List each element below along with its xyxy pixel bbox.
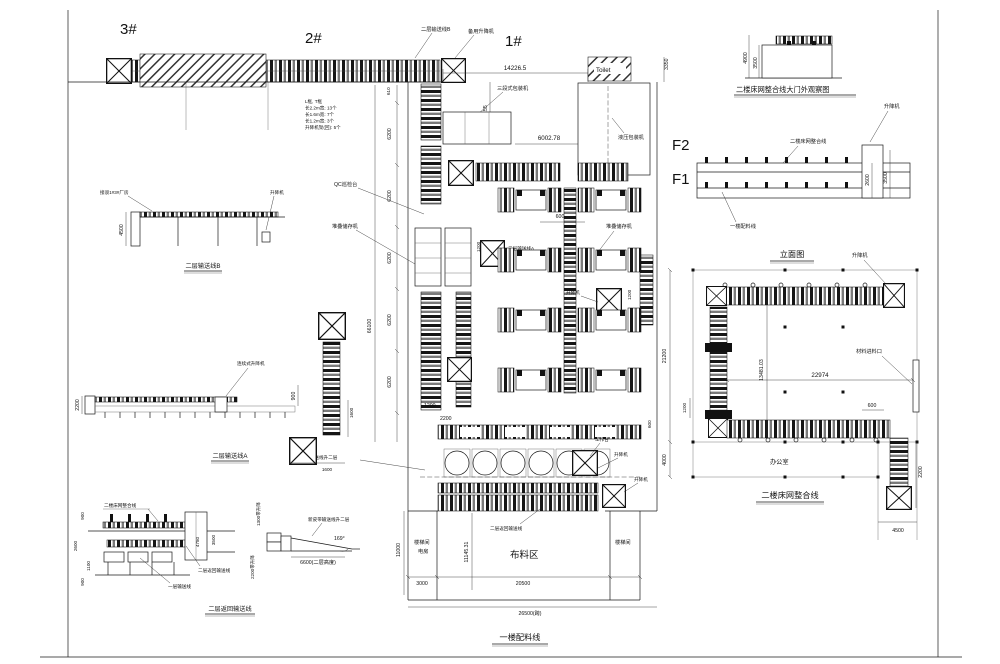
lift-mid-label: 升降机 (566, 289, 580, 296)
dim-6200: 6200 (387, 128, 393, 140)
lift-glyph (262, 232, 270, 242)
note-line: 长1.2m宽: 3个 (305, 118, 335, 125)
elevation-line1-label: 一楼配料线 (730, 222, 756, 230)
spare-lift-box (442, 59, 466, 83)
dim-13481: 13481.03 (759, 359, 765, 381)
frame-count-note: L框, T框 长2.2m宽: 13个 长1.6m宽: 7个 长1.2m宽: 3个… (305, 98, 341, 131)
dim-22974: 22974 (811, 372, 829, 379)
u-bottom-conveyor (727, 420, 890, 438)
dim-1200: 1200 (476, 241, 481, 252)
dim-2200: 2200 (75, 399, 81, 411)
stacker-left-label: 堆叠储存机 (332, 222, 359, 230)
svg-text:二层返回输送线: 二层返回输送线 (208, 605, 251, 613)
connect-label: 接驳1#3#厂房 (100, 189, 129, 196)
svg-text:二层输送线B: 二层输送线B (185, 262, 220, 270)
cad-drawing-sheet: 3# 2# 1# 二层输送线B 备用升降机 610 L框, T框 长2.2m宽:… (0, 0, 1000, 664)
belt-ramp-label: 新皮带输送线升二层 (308, 516, 350, 523)
gate-view: 4900 3500 二楼床网整合线大门外观察图 升降机 (734, 35, 900, 142)
dim-3000: 3000 (416, 581, 428, 587)
right-strip (640, 255, 653, 325)
stacker-tower (445, 228, 471, 286)
spare-lift-label: 备用升降机 (468, 27, 495, 35)
dim-900: 900 (80, 578, 85, 586)
three-stage-packer-label: 三段式包装机 (497, 84, 529, 92)
dim-600: 600 (556, 214, 565, 220)
support-block (85, 396, 95, 414)
lift-box (107, 59, 132, 84)
lift-box (319, 313, 346, 340)
material-inlet-label: 材料进料口 (856, 347, 882, 355)
dim-2200: 2200 (918, 466, 924, 478)
dim-2200: 2200 (440, 416, 452, 422)
dim-6200: 6200 (387, 190, 393, 202)
lift-box (884, 284, 905, 308)
lift-box (709, 419, 728, 438)
stair-right-label: 楼梯间 (615, 538, 631, 546)
lift-box (887, 487, 912, 510)
angle-169: 169° (334, 536, 345, 542)
office-label: 办公室 (770, 458, 789, 466)
elevation-title: 立面图 (770, 249, 814, 263)
dim-2600: 2600 (73, 540, 78, 551)
dim-1600: 1600 (322, 467, 333, 472)
gate-body (762, 45, 832, 78)
return-line-label: 二层返回输送线 (490, 525, 523, 532)
return-conveyor (438, 495, 598, 511)
elevation-lift-tower (862, 145, 883, 198)
upper-belt (103, 522, 185, 528)
dim-21200: 21200 (662, 349, 668, 364)
descend-strip-1 (421, 84, 441, 140)
conveyor-b-label: 二层输送线B (421, 25, 451, 33)
svg-text:二楼床网整合线大门外观察图: 二楼床网整合线大门外观察图 (736, 85, 829, 94)
note-line: L框, T框 (305, 98, 323, 105)
cross-conveyor-a (476, 163, 560, 181)
qc-station-label: QC巡检台 (334, 180, 357, 188)
fabric-zone-label: 布料区 (510, 549, 539, 561)
jog-strip (323, 342, 340, 435)
dim-20500: 20500 (516, 581, 531, 587)
lift-box (707, 287, 727, 306)
main-plan-title: 一楼配料线 (492, 632, 548, 646)
workbench-label: 工作台 (595, 436, 609, 443)
dim-4780: 4780 (195, 536, 200, 547)
dim-3350: 3350 (664, 58, 670, 70)
note-line: 升降机架(回): 5个 (305, 124, 341, 131)
dim-3500: 3500 (211, 534, 216, 545)
floor-mark-f1: F1 (672, 171, 690, 188)
mark-2: 2# (305, 30, 322, 47)
belt (140, 212, 278, 217)
dim-4900: 4900 (743, 52, 749, 64)
dim-3500: 3500 (753, 57, 759, 69)
dim-1300-lift: 1300带升降 (255, 502, 262, 526)
gate-lift-label: 升降机 (884, 102, 900, 110)
elevation-view: 二楼床网整合线 一楼配料线 2600 3500 立面图 升降机 (697, 137, 910, 284)
elevation-lift-label: 升降机 (852, 251, 868, 259)
cont-lift-label: 连续式升降机 (237, 360, 265, 367)
material-inlet-door (913, 360, 919, 412)
lift-box-mid (597, 289, 622, 314)
lift-b-label: 升降机 (634, 476, 648, 483)
return-label: 二层返回输送线 (198, 567, 231, 574)
dim-6200: 6200 (387, 252, 393, 264)
dim-2200-lift: 2200带升降 (249, 555, 256, 579)
dim-6600: 6600(二层高度) (300, 558, 336, 566)
three-stage-packer (443, 112, 511, 144)
detail-conveyor-a: 连续式升降机 2200 900 二层输送线A (75, 360, 298, 463)
dim-6200: 6200 (387, 314, 393, 326)
belt-row-lower (438, 483, 598, 493)
lift-box (448, 358, 472, 382)
stacker-right-label: 堆叠储存机 (606, 222, 633, 230)
lift-a-label: 升降机 (614, 451, 628, 458)
lift-glyph (215, 397, 227, 412)
left-conveyor-strip (421, 292, 441, 410)
dim-600: 600 (647, 420, 652, 428)
dim-1200: 1200 (627, 289, 632, 300)
detail-a-title: 二层输送线A (211, 452, 249, 463)
dim-4000: 4000 (662, 454, 668, 466)
dim-610: 610 (386, 87, 391, 95)
mark-1: 1# (505, 33, 522, 50)
cad-drawing-canvas: 3# 2# 1# 二层输送线B 备用升降机 610 L框, T框 长2.2m宽:… (0, 0, 1000, 664)
note-line: 长1.6m宽: 7个 (305, 111, 335, 118)
lift-box (603, 485, 626, 508)
mid-belt (107, 540, 187, 547)
detail-return-line: 二楼床网整合线 900 2600 1100 900 4780 3500 二层返回… (73, 502, 255, 616)
svg-text:立面图: 立面图 (780, 249, 805, 259)
dim-11000: 11000 (396, 543, 402, 557)
dim-900: 900 (291, 392, 297, 401)
lift-box (449, 161, 474, 186)
svg-text:二层输送线A: 二层输送线A (212, 452, 248, 460)
elevation-line2-label: 二楼床网整合线 (790, 137, 826, 145)
dim-11145: 11145.31 (464, 541, 470, 562)
dim-1200: 1200 (424, 403, 436, 409)
dim-1600: 1600 (349, 407, 354, 418)
ramp-detail: 1300带升降 2200带升降 新皮带输送线升二层 169° 6600(二层高度… (249, 502, 360, 579)
detail-return-title: 二层返回输送线 (205, 605, 255, 616)
lift-box (290, 438, 317, 465)
u-plan: 材料进料口 21200 4000 13481.03 22974 600 1200… (662, 268, 924, 540)
detail-b-title: 二层输送线B (184, 262, 222, 273)
lift-label: 升降机 (270, 189, 284, 196)
lift-box (573, 451, 598, 476)
sheet-border (40, 10, 962, 657)
line2-label: 二楼床网整合线 (104, 502, 137, 509)
dim-14226: 14226.5 (504, 65, 527, 72)
dim-1100: 1100 (86, 561, 91, 571)
power-room-label: 电房 (418, 547, 428, 555)
u-top-conveyor (708, 287, 883, 305)
hydraulic-room (578, 83, 650, 175)
dim-900: 900 (80, 512, 85, 520)
dim-6002: 6002.78 (538, 135, 561, 142)
gate-roof-conveyor (776, 36, 832, 44)
dim-600: 600 (868, 403, 877, 409)
hydraulic-packer-label: 液压包装机 (618, 133, 645, 141)
detail-conveyor-b: 接驳1#3#厂房 升降机 4500 二层输送线B (100, 189, 285, 273)
gate-view-title: 二楼床网整合线大门外观察图 (734, 85, 856, 97)
dim-1200: 1200 (682, 402, 687, 413)
cross-conveyor-b (578, 163, 628, 181)
u-plan-title: 二楼床网整合线 (756, 490, 824, 504)
qc-tower (415, 228, 441, 286)
dim-4500: 4500 (892, 528, 904, 534)
note-line: 长2.2m宽: 13个 (305, 105, 337, 112)
support-wall (131, 212, 140, 246)
floor-mark-f2: F2 (672, 137, 690, 154)
dim-66100: 66100 (367, 319, 373, 334)
toilet-label: Toilet (596, 67, 611, 74)
dim-26500: 26500(跨) (518, 609, 541, 617)
descend-strip-2 (421, 146, 441, 204)
layer1-label: 一层输送线 (168, 583, 191, 590)
stair-left-label: 楼梯间 (414, 538, 430, 546)
center-strip-a (456, 292, 471, 407)
dim-3500: 3500 (883, 172, 889, 184)
mark-3: 3# (120, 21, 137, 38)
lower-belt (95, 406, 295, 412)
dim-2600: 2600 (865, 174, 871, 186)
dim-6200: 6200 (387, 376, 393, 388)
svg-text:二楼床网整合线: 二楼床网整合线 (761, 490, 818, 500)
dim-4500: 4500 (119, 224, 125, 236)
u-right-conveyor (890, 438, 908, 486)
svg-text:一楼配料线: 一楼配料线 (500, 632, 541, 642)
